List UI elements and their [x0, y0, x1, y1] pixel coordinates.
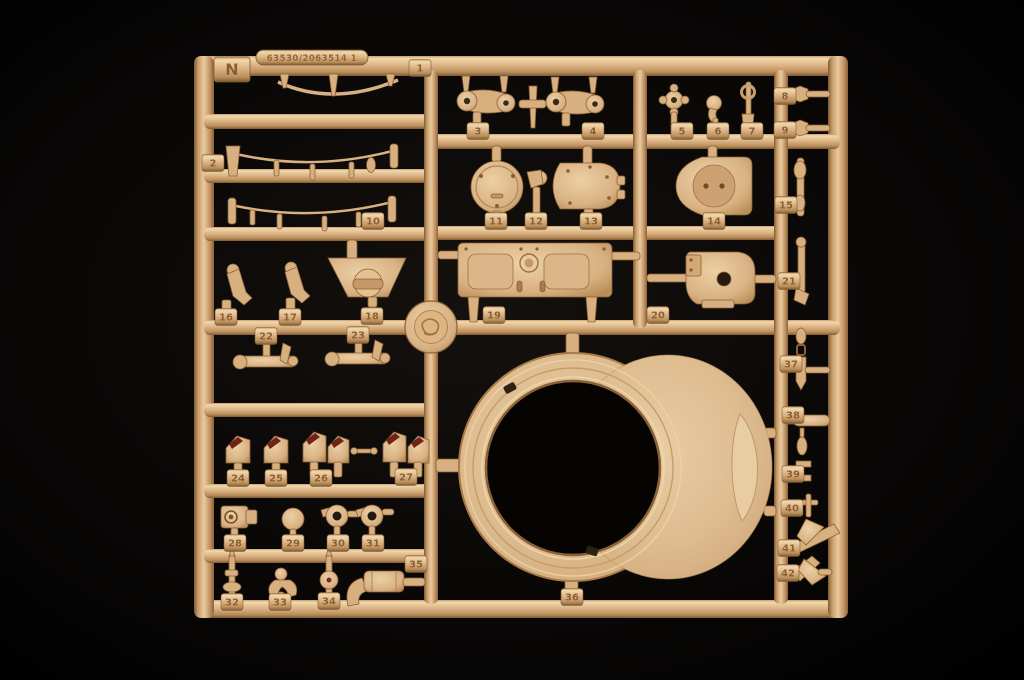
sprue-sheet: 63530/2063514 1 N 1234567891011121314151…: [0, 0, 1024, 680]
vignette-overlay: [0, 0, 1024, 680]
photo-canvas: 63530/2063514 1 N 1234567891011121314151…: [0, 0, 1024, 680]
